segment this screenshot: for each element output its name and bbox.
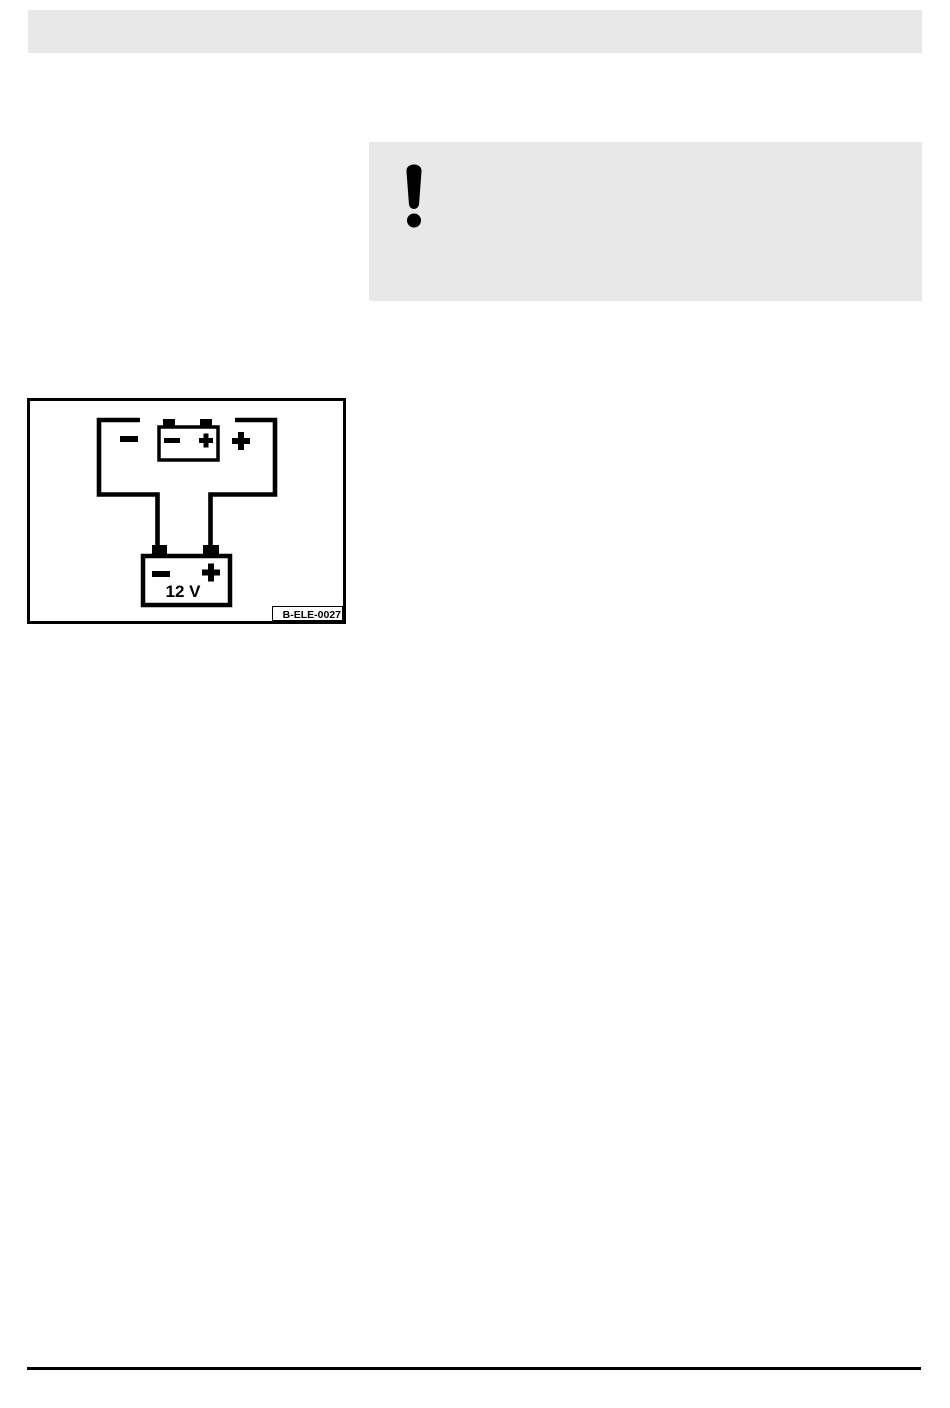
warning-callout	[369, 142, 922, 301]
figure-code: B-ELE-0027	[273, 607, 343, 622]
charger-minus-symbol	[120, 436, 138, 442]
exclamation-icon	[400, 164, 428, 228]
charger-battery-body	[159, 427, 218, 460]
battery-charging-diagram: 12 V B-ELE-0027	[27, 398, 346, 624]
exclamation-dot	[407, 214, 421, 228]
battery-minus-symbol	[152, 571, 170, 577]
exclamation-bar	[406, 165, 421, 210]
battery-voltage-label: 12 V	[166, 582, 202, 601]
footer-rule	[27, 1367, 921, 1370]
vehicle-battery: 12 V	[143, 545, 230, 605]
figure-code-label: B-ELE-0027	[283, 609, 342, 621]
charger-battery-minus-symbol	[164, 438, 180, 443]
header-bar	[28, 10, 922, 53]
